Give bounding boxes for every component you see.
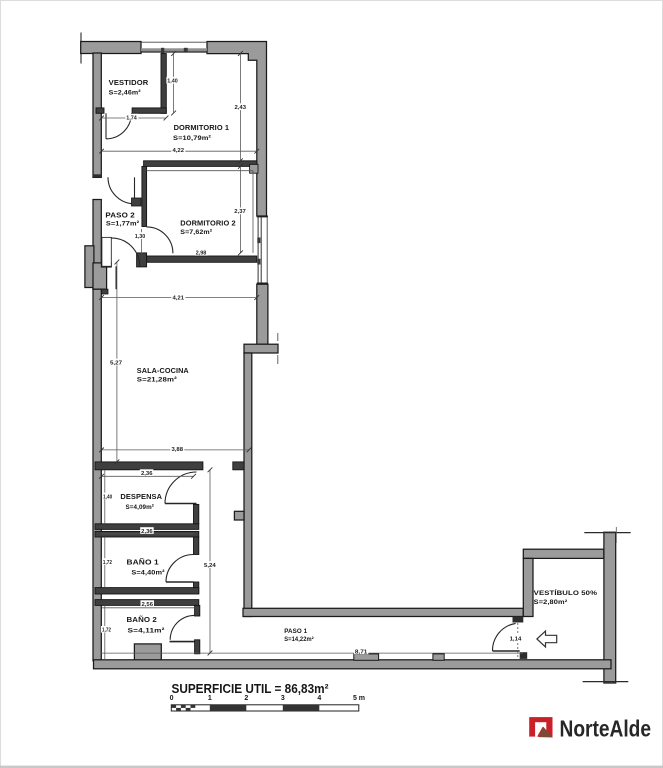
svg-text:3: 3 [281,695,285,702]
svg-text:VESTÍBULO 50%: VESTÍBULO 50% [534,588,597,597]
svg-text:2,37: 2,37 [234,209,246,215]
svg-text:DESPENSA: DESPENSA [120,492,162,501]
svg-text:2,36: 2,36 [141,529,153,535]
svg-text:1,72: 1,72 [103,560,113,566]
svg-text:VESTIDOR: VESTIDOR [109,78,149,87]
svg-text:DORMITORIO 2: DORMITORIO 2 [180,219,235,228]
svg-text:S=4,09m²: S=4,09m² [126,504,155,511]
svg-text:PASO 2: PASO 2 [105,211,134,220]
svg-text:S=4,40m²: S=4,40m² [131,570,165,577]
svg-text:NorteAlde: NorteAlde [560,716,652,742]
svg-text:PASO 1: PASO 1 [284,628,307,635]
svg-text:1,14: 1,14 [510,636,522,642]
svg-text:2,56: 2,56 [142,602,154,608]
svg-text:2,98: 2,98 [196,251,207,257]
svg-text:SALA-COCINA: SALA-COCINA [137,366,190,375]
svg-text:1: 1 [208,695,212,702]
svg-text:S=10,79m²: S=10,79m² [173,135,212,142]
svg-text:1,72: 1,72 [102,628,112,634]
svg-text:1,40: 1,40 [167,78,178,84]
svg-text:2,43: 2,43 [235,105,247,111]
svg-text:5,27: 5,27 [110,361,123,367]
svg-text:5,24: 5,24 [204,563,216,569]
svg-text:1,74: 1,74 [126,115,137,121]
svg-text:1,30: 1,30 [135,234,146,240]
svg-text:2: 2 [244,695,248,702]
svg-text:4,22: 4,22 [173,148,185,154]
svg-text:S=2,80m²: S=2,80m² [534,599,568,606]
svg-text:8,71: 8,71 [355,650,368,656]
svg-text:S=14,22m²: S=14,22m² [284,636,314,643]
svg-text:4,21: 4,21 [173,296,185,302]
svg-text:5 m: 5 m [353,695,365,702]
svg-text:S=7,62m²: S=7,62m² [180,229,213,236]
svg-text:S=2,46m²: S=2,46m² [109,89,142,96]
svg-text:0: 0 [170,695,174,702]
svg-text:1,40: 1,40 [103,494,113,500]
svg-text:S=1,77m²: S=1,77m² [106,220,140,227]
svg-text:3,88: 3,88 [172,447,184,453]
svg-text:DORMITORIO 1: DORMITORIO 1 [174,123,230,132]
svg-text:4: 4 [317,695,321,702]
svg-text:BAÑO 2: BAÑO 2 [127,615,157,624]
svg-text:S=4,11m²: S=4,11m² [128,627,166,634]
svg-text:2,36: 2,36 [141,471,153,477]
svg-text:S=21,28m²: S=21,28m² [137,376,178,383]
svg-text:SUPERFICIE UTIL = 86,83m²: SUPERFICIE UTIL = 86,83m² [172,682,329,696]
svg-text:BAÑO 1: BAÑO 1 [127,558,159,567]
